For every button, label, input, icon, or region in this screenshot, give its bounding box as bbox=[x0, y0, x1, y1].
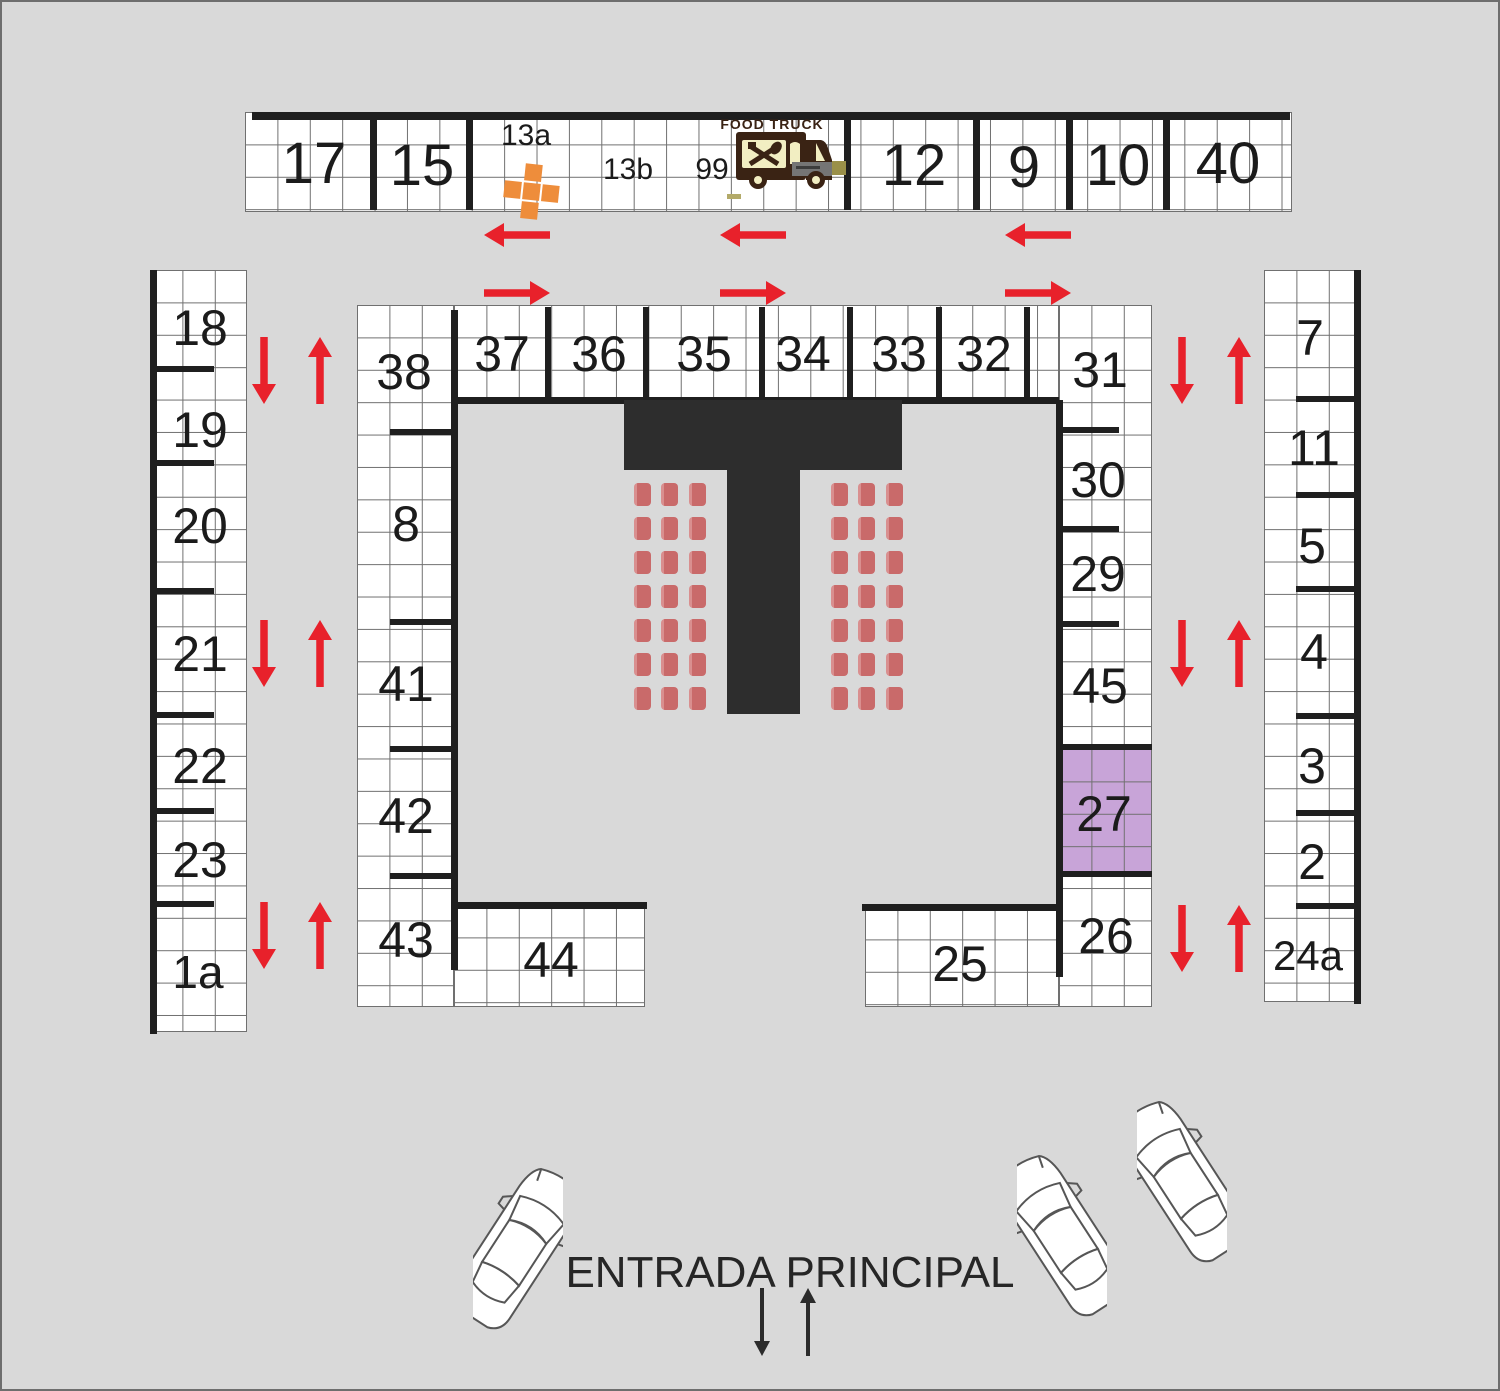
chair-icon bbox=[886, 551, 903, 574]
chair-icon bbox=[634, 483, 651, 506]
wall-segment bbox=[154, 808, 214, 814]
chair-icon bbox=[886, 687, 903, 710]
food-truck-label: FOOD TRUCK bbox=[720, 116, 823, 132]
wall-segment bbox=[1061, 427, 1119, 433]
chair-icon bbox=[858, 653, 875, 676]
stall-label-32: 32 bbox=[956, 329, 1012, 379]
stall-label-18: 18 bbox=[172, 303, 228, 353]
chair-icon bbox=[689, 483, 706, 506]
chair-icon bbox=[831, 585, 848, 608]
stall-label-21: 21 bbox=[172, 629, 228, 679]
stall-label-3: 3 bbox=[1298, 741, 1326, 791]
wall-segment bbox=[150, 270, 157, 1034]
chair-icon bbox=[858, 687, 875, 710]
wall-segment bbox=[154, 588, 214, 594]
wall-segment bbox=[973, 114, 980, 210]
chair-icon bbox=[886, 585, 903, 608]
stall-label-1a: 1a bbox=[172, 949, 223, 995]
stall-label-27: 27 bbox=[1076, 789, 1132, 839]
stall-label-9: 9 bbox=[1008, 139, 1040, 197]
chair-icon bbox=[858, 483, 875, 506]
chair-icon bbox=[634, 653, 651, 676]
wall-segment bbox=[759, 307, 765, 400]
chair-icon bbox=[661, 517, 678, 540]
wall-segment bbox=[390, 429, 454, 435]
wall-segment bbox=[1296, 903, 1356, 909]
wall-segment bbox=[154, 712, 214, 718]
chair-icon bbox=[689, 653, 706, 676]
wall-segment bbox=[1296, 492, 1356, 498]
wall-segment bbox=[1296, 810, 1356, 816]
cross-square bbox=[503, 180, 522, 199]
chair-icon bbox=[886, 653, 903, 676]
stall-label-17: 17 bbox=[282, 135, 347, 193]
wall-segment bbox=[390, 873, 454, 879]
chair-icon bbox=[858, 517, 875, 540]
stall-label-43: 43 bbox=[378, 915, 434, 965]
wall-segment bbox=[1056, 400, 1063, 977]
plate-mark bbox=[727, 194, 741, 199]
stall-label-20: 20 bbox=[172, 501, 228, 551]
chair-icon bbox=[634, 687, 651, 710]
wall-segment bbox=[643, 307, 649, 400]
wall-segment bbox=[466, 114, 473, 210]
wall-segment bbox=[1061, 621, 1119, 627]
stall-label-8: 8 bbox=[392, 499, 420, 549]
chair-icon bbox=[634, 585, 651, 608]
chair-icon bbox=[831, 619, 848, 642]
wall-segment bbox=[154, 901, 214, 907]
car-icon bbox=[1017, 1142, 1107, 1326]
car-icon bbox=[473, 1155, 563, 1339]
wall-segment bbox=[451, 902, 647, 909]
chair-icon bbox=[661, 653, 678, 676]
stall-label-33: 33 bbox=[871, 329, 927, 379]
wall-segment bbox=[390, 619, 454, 625]
stall-label-26: 26 bbox=[1078, 911, 1134, 961]
stalls-right-inner-column bbox=[1059, 305, 1152, 1007]
cross-square bbox=[541, 184, 560, 203]
stall-label-24a: 24a bbox=[1273, 935, 1343, 977]
stall-label-41: 41 bbox=[378, 659, 434, 709]
stall-label-37: 37 bbox=[474, 329, 530, 379]
stall-label-13a: 13a bbox=[501, 121, 551, 151]
chair-icon bbox=[634, 517, 651, 540]
chair-icon bbox=[831, 551, 848, 574]
wall-segment bbox=[1296, 396, 1356, 402]
cross-square bbox=[522, 182, 541, 201]
chair-icon bbox=[689, 687, 706, 710]
wall-segment bbox=[390, 746, 454, 752]
wall-segment bbox=[154, 366, 214, 372]
stall-label-36: 36 bbox=[571, 329, 627, 379]
chair-icon bbox=[858, 585, 875, 608]
wall-segment bbox=[1296, 586, 1356, 592]
stall-label-15: 15 bbox=[390, 137, 455, 195]
stall-label-2: 2 bbox=[1298, 837, 1326, 887]
chair-icon bbox=[634, 551, 651, 574]
stall-label-25: 25 bbox=[932, 939, 988, 989]
chair-icon bbox=[661, 585, 678, 608]
stall-label-4: 4 bbox=[1300, 627, 1328, 677]
chair-icon bbox=[831, 483, 848, 506]
stall-label-34: 34 bbox=[775, 329, 831, 379]
chair-icon bbox=[661, 687, 678, 710]
stall-label-38: 38 bbox=[376, 347, 432, 397]
chair-icon bbox=[661, 483, 678, 506]
chair-icon bbox=[886, 619, 903, 642]
entrance-label: ENTRADA PRINCIPAL bbox=[565, 1248, 1014, 1298]
wall-segment bbox=[1354, 270, 1361, 1004]
stall-label-10: 10 bbox=[1086, 137, 1151, 195]
wall-segment bbox=[847, 307, 853, 400]
stall-label-35: 35 bbox=[676, 329, 732, 379]
stall-label-45: 45 bbox=[1072, 661, 1128, 711]
stall-label-40: 40 bbox=[1196, 135, 1261, 193]
wall-segment bbox=[545, 307, 551, 400]
cross-square bbox=[524, 163, 543, 182]
stall-label-22: 22 bbox=[172, 741, 228, 791]
wall-segment bbox=[1024, 307, 1030, 400]
car-icon bbox=[1137, 1088, 1227, 1272]
stall-label-42: 42 bbox=[378, 791, 434, 841]
chair-icon bbox=[886, 517, 903, 540]
wall-segment bbox=[1059, 744, 1152, 750]
stall-label-13b: 13b bbox=[603, 155, 653, 185]
stage-area bbox=[624, 400, 902, 470]
chair-icon bbox=[858, 551, 875, 574]
chair-icon bbox=[831, 517, 848, 540]
stall-label-7: 7 bbox=[1296, 313, 1324, 363]
chair-icon bbox=[661, 551, 678, 574]
wall-segment bbox=[370, 114, 377, 210]
chair-icon bbox=[858, 619, 875, 642]
wall-segment bbox=[1163, 114, 1170, 210]
chair-icon bbox=[831, 687, 848, 710]
wall-segment bbox=[451, 310, 458, 970]
stall-label-30: 30 bbox=[1070, 455, 1126, 505]
chair-icon bbox=[634, 619, 651, 642]
stall-label-44: 44 bbox=[523, 935, 579, 985]
stall-label-31: 31 bbox=[1072, 345, 1128, 395]
stall-label-19: 19 bbox=[172, 405, 228, 455]
wall-segment bbox=[154, 460, 214, 466]
chair-icon bbox=[689, 619, 706, 642]
stall-label-29: 29 bbox=[1070, 549, 1126, 599]
stall-label-99: 99 bbox=[695, 155, 728, 185]
chair-icon bbox=[886, 483, 903, 506]
wall-segment bbox=[936, 307, 942, 400]
chair-icon bbox=[689, 551, 706, 574]
wall-segment bbox=[1066, 114, 1073, 210]
chair-icon bbox=[689, 517, 706, 540]
wall-segment bbox=[1059, 871, 1152, 877]
chair-icon bbox=[689, 585, 706, 608]
stage-area bbox=[727, 468, 800, 714]
wall-segment bbox=[862, 904, 1059, 911]
stall-label-23: 23 bbox=[172, 835, 228, 885]
cross-square bbox=[520, 201, 539, 220]
stall-label-12: 12 bbox=[882, 137, 947, 195]
wall-segment bbox=[1061, 526, 1119, 532]
wall-segment bbox=[1296, 713, 1356, 719]
stall-label-11: 11 bbox=[1288, 423, 1340, 473]
floor-plan: ENTRADA PRINCIPAL FOOD TRUCK 171513a13b9… bbox=[0, 0, 1500, 1391]
stall-label-5: 5 bbox=[1298, 521, 1326, 571]
chair-icon bbox=[661, 619, 678, 642]
chair-icon bbox=[831, 653, 848, 676]
